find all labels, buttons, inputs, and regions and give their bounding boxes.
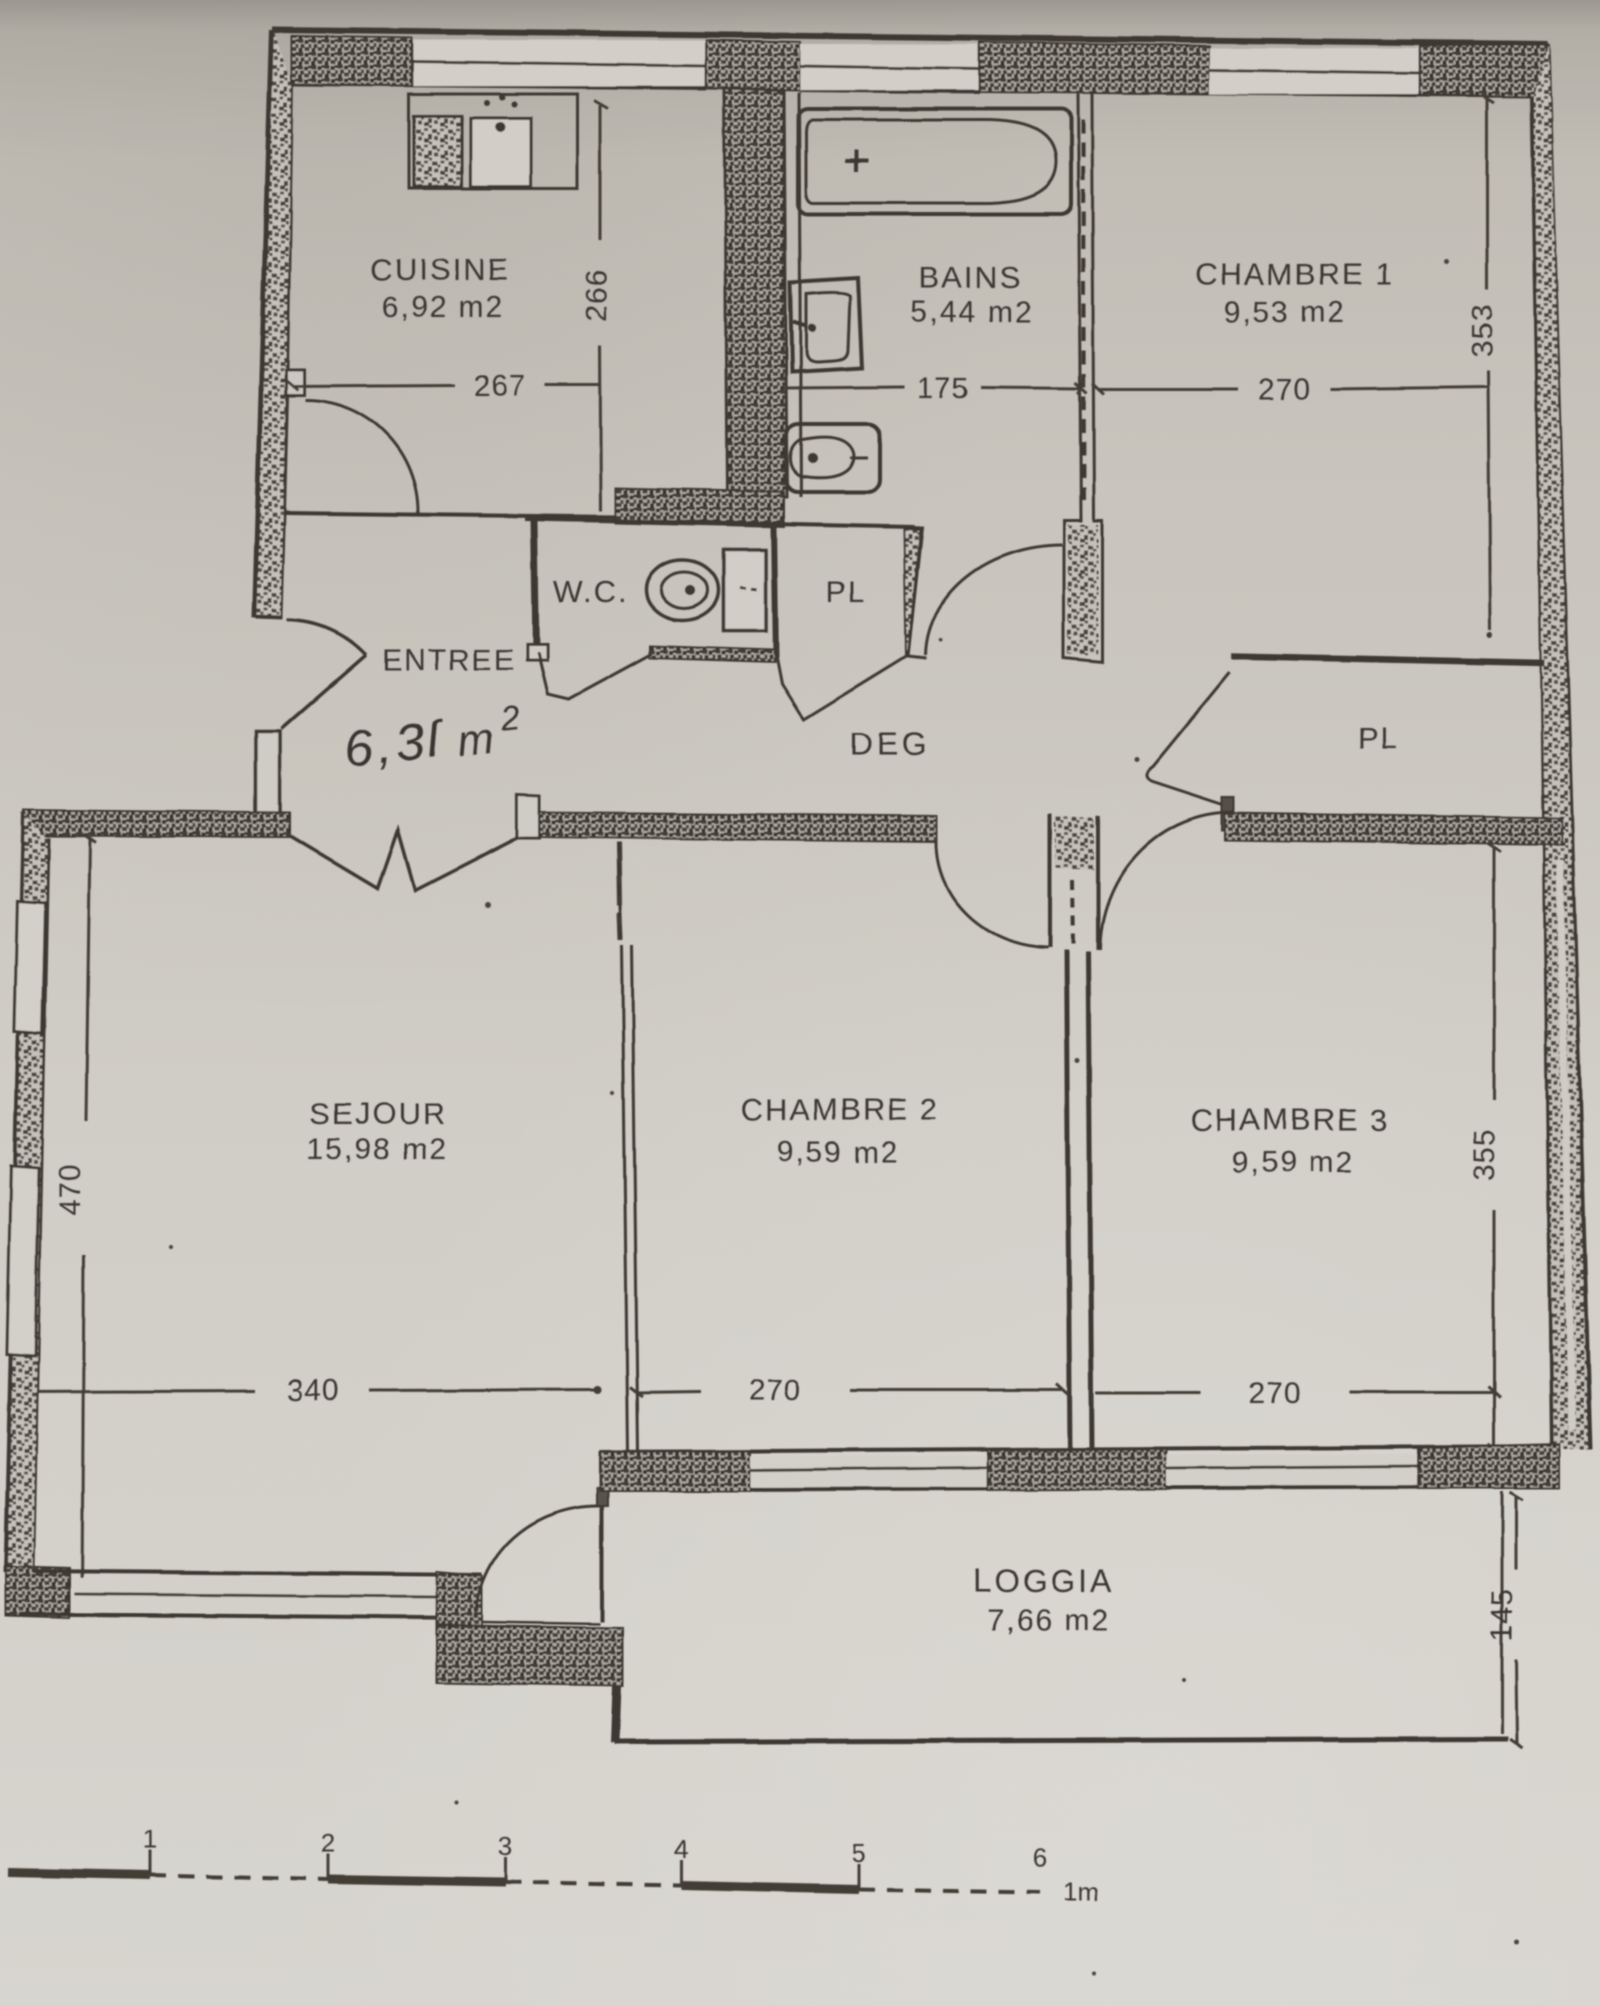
svg-text:W.C.: W.C. — [553, 574, 628, 609]
svg-text:340: 340 — [286, 1374, 339, 1407]
svg-text:7,66 m2: 7,66 m2 — [988, 1604, 1110, 1637]
svg-text:9,59 m2: 9,59 m2 — [777, 1136, 899, 1169]
svg-text:CUISINE: CUISINE — [370, 252, 510, 287]
svg-text:175: 175 — [917, 372, 970, 405]
svg-text:CHAMBRE 3: CHAMBRE 3 — [1191, 1102, 1390, 1137]
svg-text:ENTREE: ENTREE — [382, 644, 516, 677]
svg-text:145: 145 — [1486, 1588, 1519, 1641]
svg-text:270: 270 — [748, 1374, 801, 1407]
svg-text:270: 270 — [1257, 373, 1310, 406]
svg-text:BAINS: BAINS — [918, 260, 1021, 295]
svg-text:9,59 m2: 9,59 m2 — [1232, 1146, 1354, 1179]
svg-text:6: 6 — [1032, 1842, 1046, 1872]
svg-text:3: 3 — [498, 1831, 512, 1861]
svg-text:CHAMBRE 1: CHAMBRE 1 — [1196, 257, 1395, 292]
svg-text:5,44 m2: 5,44 m2 — [911, 296, 1033, 329]
svg-text:6,92 m2: 6,92 m2 — [382, 291, 504, 324]
svg-text:DEG: DEG — [849, 726, 930, 762]
svg-text:4: 4 — [674, 1834, 688, 1864]
svg-text:PL: PL — [826, 576, 867, 609]
svg-text:267: 267 — [473, 369, 526, 402]
svg-text:15,98 m2: 15,98 m2 — [306, 1133, 447, 1166]
svg-text:2: 2 — [497, 699, 521, 739]
svg-text:270: 270 — [1248, 1377, 1301, 1410]
svg-text:5: 5 — [852, 1838, 866, 1868]
svg-text:9,53 m2: 9,53 m2 — [1224, 296, 1346, 329]
svg-text:1: 1 — [143, 1824, 157, 1854]
svg-text:SEJOUR: SEJOUR — [309, 1096, 447, 1131]
svg-text:470: 470 — [54, 1163, 87, 1216]
svg-text:353: 353 — [1466, 303, 1499, 356]
svg-text:1m: 1m — [1063, 1876, 1099, 1906]
svg-text:2: 2 — [321, 1828, 335, 1858]
svg-text:m: m — [454, 714, 496, 767]
svg-text:CHAMBRE 2: CHAMBRE 2 — [741, 1092, 940, 1127]
svg-text:355: 355 — [1468, 1128, 1501, 1181]
svg-text:LOGGIA: LOGGIA — [974, 1563, 1115, 1599]
svg-text:PL: PL — [1358, 722, 1399, 755]
svg-text:6,3: 6,3 — [342, 712, 432, 778]
svg-text:266: 266 — [580, 268, 613, 321]
